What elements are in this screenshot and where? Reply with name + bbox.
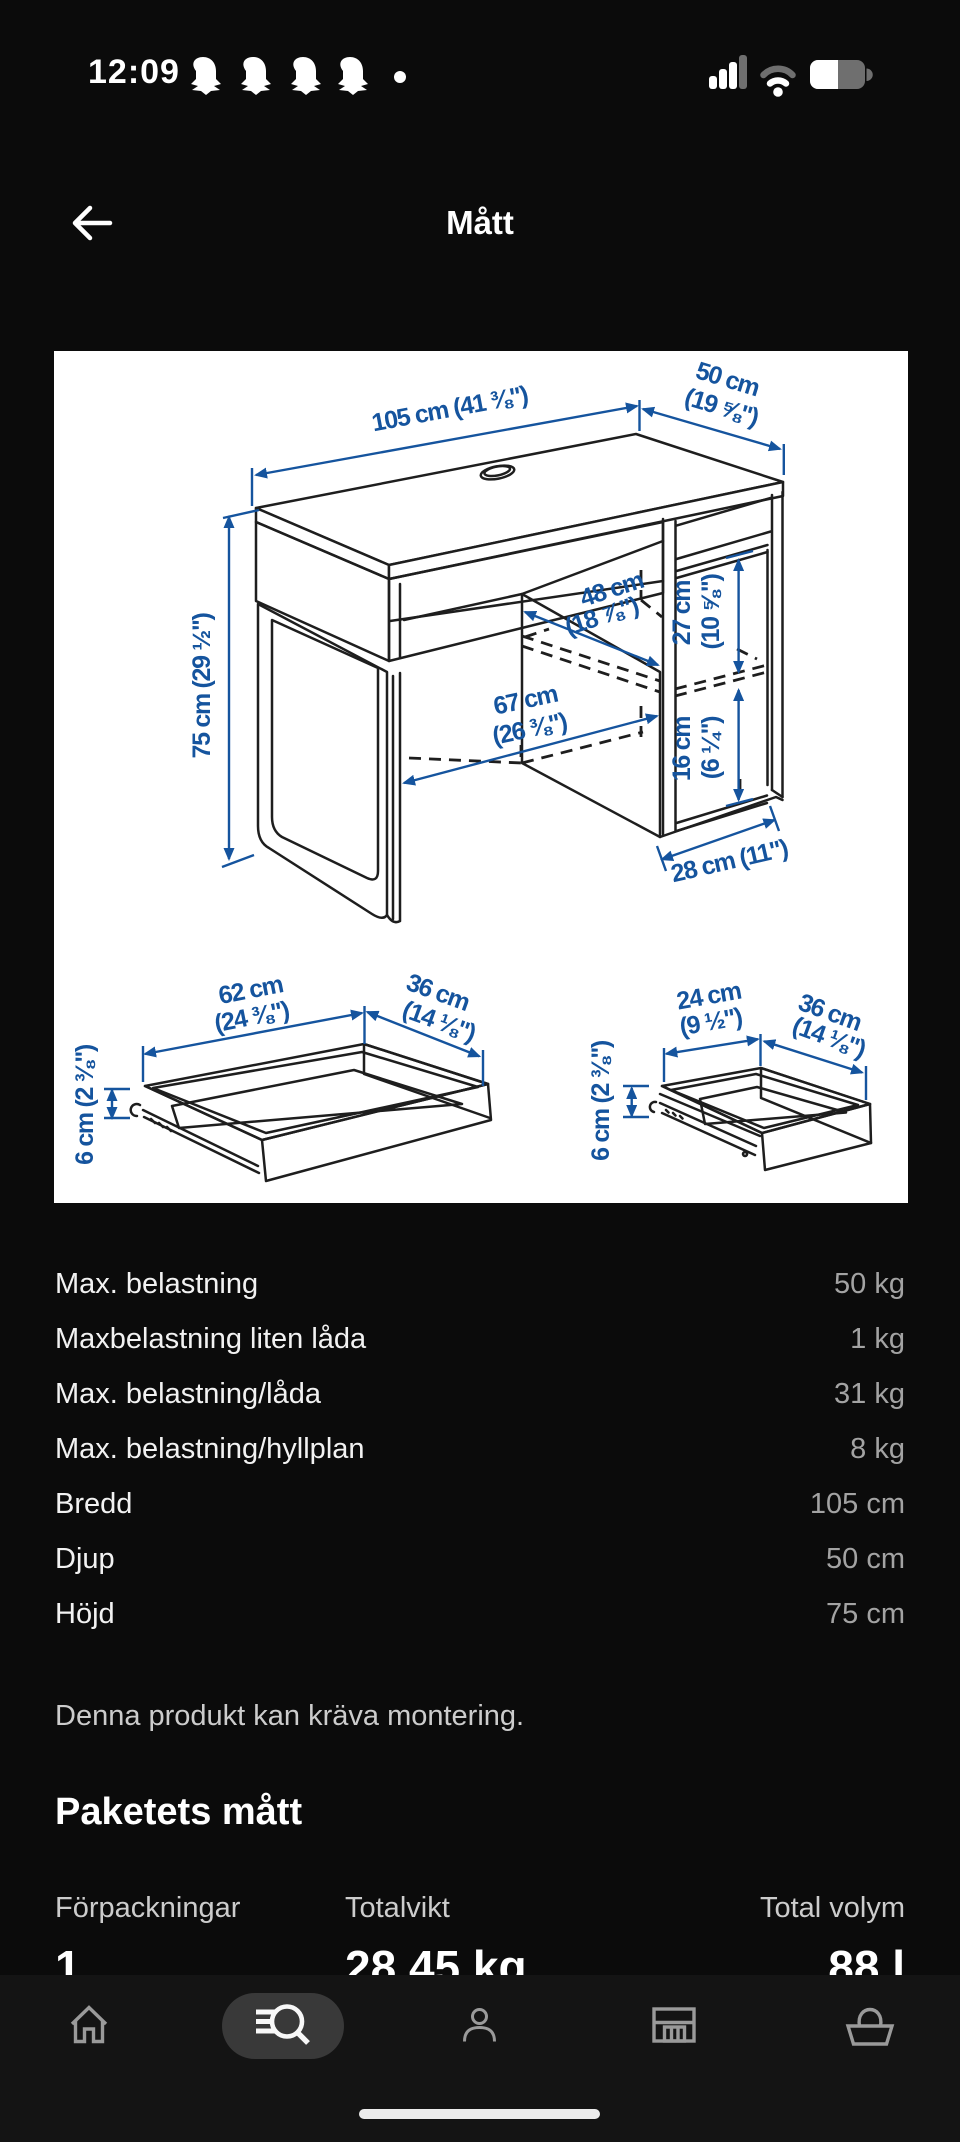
- svg-text:6 cm (2 ⅜"): 6 cm (2 ⅜"): [587, 1040, 615, 1161]
- svg-text:(6 ¼"): (6 ¼"): [697, 716, 725, 779]
- svg-text:16 cm: 16 cm: [668, 717, 696, 781]
- svg-text:(10 ⅝"): (10 ⅝"): [697, 574, 725, 650]
- svg-text:6 cm (2 ⅜"): 6 cm (2 ⅜"): [71, 1044, 99, 1165]
- svg-text:75 cm (29 ½"): 75 cm (29 ½"): [188, 613, 216, 759]
- svg-text:27 cm: 27 cm: [668, 581, 696, 645]
